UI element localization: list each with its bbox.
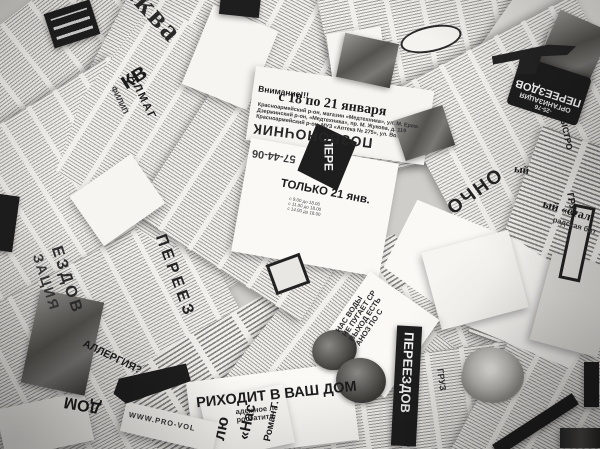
cargo-small: ГРУЗ bbox=[434, 368, 447, 391]
dark-headline-block bbox=[584, 362, 599, 407]
dark-headline-block bbox=[560, 428, 600, 448]
yi-fragment: ый bbox=[513, 164, 529, 178]
moving-vertical-label: ПЕРЕЕЗДОВ bbox=[398, 332, 416, 414]
newspaper-collage-photo: ПЕРЕ ПЕРЕЕЗДОВ -25-76 ОРГАНИЗАЦИЯ ПЕРЕЕЗ… bbox=[0, 0, 600, 449]
